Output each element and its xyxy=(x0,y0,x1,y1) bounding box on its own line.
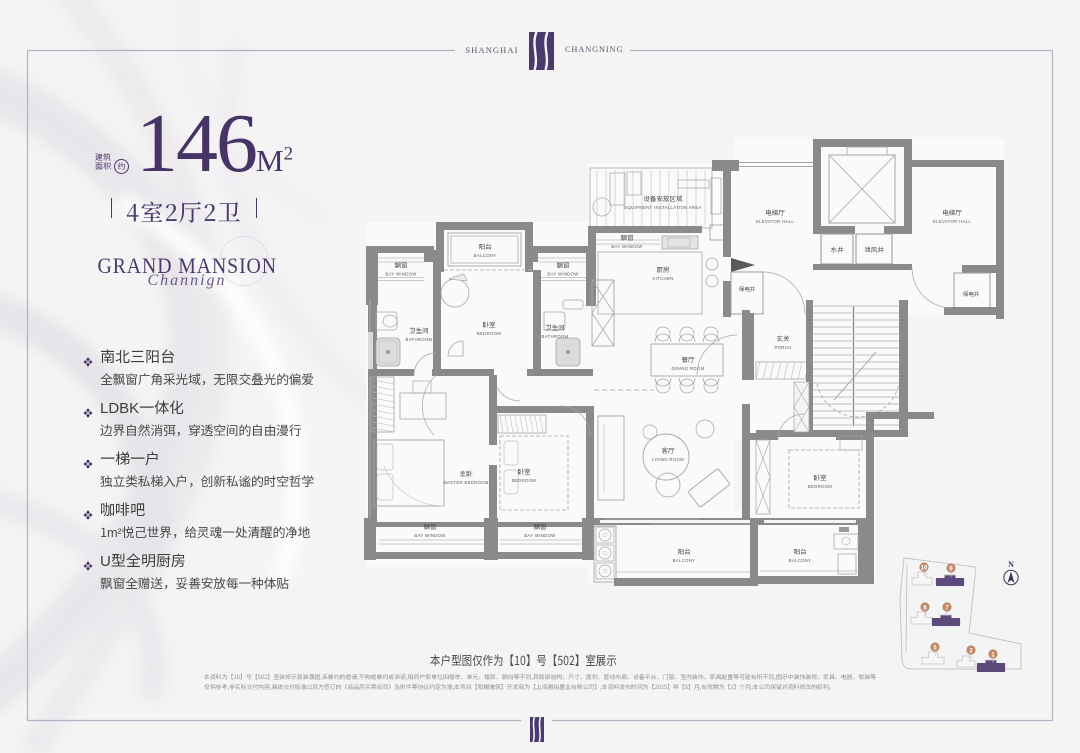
svg-text:BALCONY: BALCONY xyxy=(474,253,497,258)
svg-text:N: N xyxy=(1008,560,1014,569)
svg-text:玄关: 玄关 xyxy=(777,333,791,343)
svg-text:阳台: 阳台 xyxy=(794,546,807,556)
svg-text:飘窗: 飘窗 xyxy=(557,260,570,270)
svg-text:BEDROOM: BEDROOM xyxy=(808,484,832,489)
svg-text:卫生间: 卫生间 xyxy=(544,322,565,332)
svg-text:保电井: 保电井 xyxy=(963,290,980,298)
svg-text:BAY WINDOW: BAY WINDOW xyxy=(524,533,556,538)
svg-text:PORCH: PORCH xyxy=(774,345,791,350)
svg-text:卧室: 卧室 xyxy=(518,466,532,476)
svg-text:ELEVATOR HALL: ELEVATOR HALL xyxy=(756,219,794,224)
svg-text:KITCHEN: KITCHEN xyxy=(653,276,674,281)
svg-text:BAY WINDOW: BAY WINDOW xyxy=(414,533,446,538)
svg-text:ELEVATOR HALL: ELEVATOR HALL xyxy=(933,219,971,224)
svg-text:BAY WINDOW: BAY WINDOW xyxy=(547,272,579,277)
svg-text:保电井: 保电井 xyxy=(739,285,756,293)
svg-text:BAY WINDOW: BAY WINDOW xyxy=(611,244,643,249)
svg-text:BATHROOM: BATHROOM xyxy=(406,337,433,342)
svg-text:主卧: 主卧 xyxy=(460,468,474,478)
svg-text:卧室: 卧室 xyxy=(483,319,497,329)
svg-text:餐厅: 餐厅 xyxy=(681,354,696,364)
svg-text:BAY WINDOW: BAY WINDOW xyxy=(385,272,417,277)
svg-text:卫生间: 卫生间 xyxy=(408,325,429,335)
svg-text:厨房: 厨房 xyxy=(657,264,671,274)
svg-text:MASTER BEDROOM: MASTER BEDROOM xyxy=(443,480,489,485)
svg-text:飘窗: 飘窗 xyxy=(534,521,547,531)
svg-text:电梯厅: 电梯厅 xyxy=(942,207,962,217)
svg-text:LIVING ROOM: LIVING ROOM xyxy=(652,457,684,462)
svg-text:10: 10 xyxy=(921,565,928,571)
svg-text:水井: 水井 xyxy=(831,244,845,254)
svg-text:EQUIPMENT INSTALLATION AREA: EQUIPMENT INSTALLATION AREA xyxy=(624,205,701,210)
svg-text:飘窗: 飘窗 xyxy=(395,260,408,270)
svg-text:飘窗: 飘窗 xyxy=(424,521,437,531)
svg-text:DINING ROOM: DINING ROOM xyxy=(672,366,705,371)
svg-text:BALCONY: BALCONY xyxy=(673,558,696,563)
svg-text:卧室: 卧室 xyxy=(814,472,828,482)
svg-text:电梯厅: 电梯厅 xyxy=(765,207,785,217)
svg-text:BATHROOM: BATHROOM xyxy=(542,334,569,339)
svg-text:飘窗: 飘窗 xyxy=(621,232,634,242)
svg-text:客厅: 客厅 xyxy=(662,445,676,455)
svg-text:BALCONY: BALCONY xyxy=(789,558,812,563)
svg-text:阳台: 阳台 xyxy=(479,241,492,251)
svg-text:阳台: 阳台 xyxy=(678,546,691,556)
svg-text:BEDROOM: BEDROOM xyxy=(477,331,501,336)
svg-text:BEDROOM: BEDROOM xyxy=(512,478,536,483)
svg-text:泄风井: 泄风井 xyxy=(864,244,884,254)
svg-text:设备安放区域: 设备安放区域 xyxy=(644,193,684,203)
